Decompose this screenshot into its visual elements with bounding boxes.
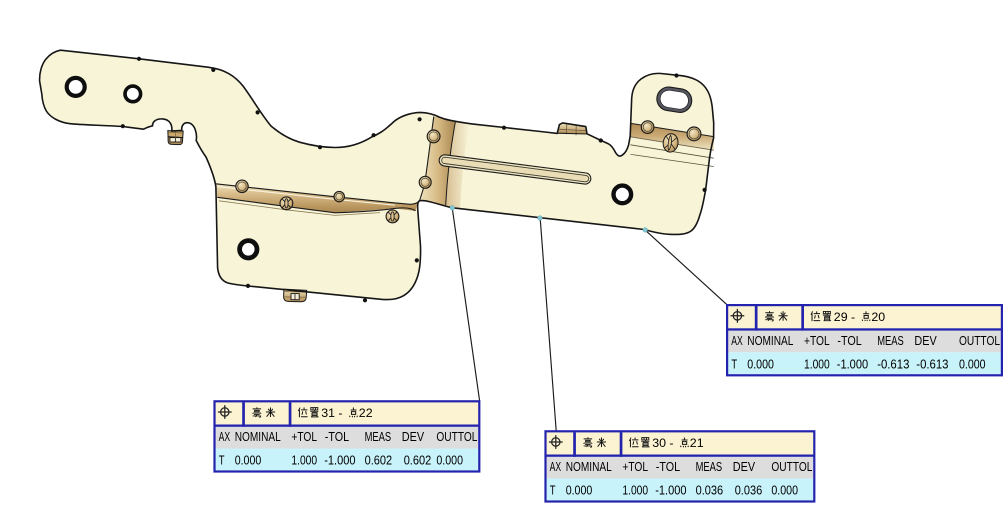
svg-text:0.000: 0.000 bbox=[235, 453, 262, 468]
svg-text:T: T bbox=[550, 483, 556, 498]
svg-text:29 -: 29 - bbox=[834, 310, 855, 324]
svg-text:-0.613: -0.613 bbox=[916, 356, 948, 371]
svg-text:MEAS: MEAS bbox=[696, 459, 723, 474]
svg-text:0.000: 0.000 bbox=[747, 356, 774, 371]
svg-text:+TOL: +TOL bbox=[291, 429, 317, 444]
svg-text:0.036: 0.036 bbox=[696, 483, 724, 498]
svg-text:0.000: 0.000 bbox=[566, 483, 593, 498]
svg-text:MEAS: MEAS bbox=[365, 429, 392, 444]
svg-text:-TOL: -TOL bbox=[656, 459, 680, 474]
svg-text:31 -: 31 - bbox=[321, 406, 342, 420]
svg-text:NOMINAL: NOMINAL bbox=[235, 429, 281, 444]
svg-text:OUTTOL: OUTTOL bbox=[959, 333, 1000, 348]
svg-text:0.036: 0.036 bbox=[735, 483, 763, 498]
svg-text:22: 22 bbox=[359, 406, 373, 420]
svg-text:NOMINAL: NOMINAL bbox=[566, 459, 612, 474]
svg-text:OUTTOL: OUTTOL bbox=[436, 429, 477, 444]
svg-text:0.602: 0.602 bbox=[404, 453, 432, 468]
svg-text:0.602: 0.602 bbox=[365, 453, 393, 468]
svg-text:0.000: 0.000 bbox=[959, 356, 986, 371]
svg-text:-1.000: -1.000 bbox=[655, 483, 686, 498]
svg-text:AX: AX bbox=[550, 459, 562, 474]
svg-text:-1.000: -1.000 bbox=[837, 356, 868, 371]
svg-text:1.000: 1.000 bbox=[291, 453, 317, 468]
svg-text:DEV: DEV bbox=[402, 429, 425, 444]
svg-text:-0.613: -0.613 bbox=[877, 356, 909, 371]
svg-text:T: T bbox=[731, 356, 737, 371]
svg-text:DEV: DEV bbox=[733, 459, 756, 474]
svg-text:AX: AX bbox=[219, 429, 231, 444]
svg-text:+TOL: +TOL bbox=[804, 333, 830, 348]
svg-text:MEAS: MEAS bbox=[877, 333, 904, 348]
svg-text:21: 21 bbox=[690, 436, 704, 450]
svg-text:1.000: 1.000 bbox=[804, 356, 830, 371]
svg-text:0.000: 0.000 bbox=[771, 483, 798, 498]
svg-text:-TOL: -TOL bbox=[325, 429, 349, 444]
svg-text:T: T bbox=[219, 453, 225, 468]
svg-text:30 -: 30 - bbox=[652, 436, 673, 450]
svg-text:OUTTOL: OUTTOL bbox=[771, 459, 812, 474]
svg-text:-1.000: -1.000 bbox=[324, 453, 355, 468]
svg-text:AX: AX bbox=[731, 333, 743, 348]
svg-text:0.000: 0.000 bbox=[436, 453, 463, 468]
svg-text:-TOL: -TOL bbox=[837, 333, 861, 348]
svg-text:NOMINAL: NOMINAL bbox=[747, 333, 793, 348]
svg-text:1.000: 1.000 bbox=[622, 483, 648, 498]
svg-text:+TOL: +TOL bbox=[622, 459, 648, 474]
svg-text:20: 20 bbox=[871, 310, 885, 324]
svg-text:DEV: DEV bbox=[914, 333, 937, 348]
